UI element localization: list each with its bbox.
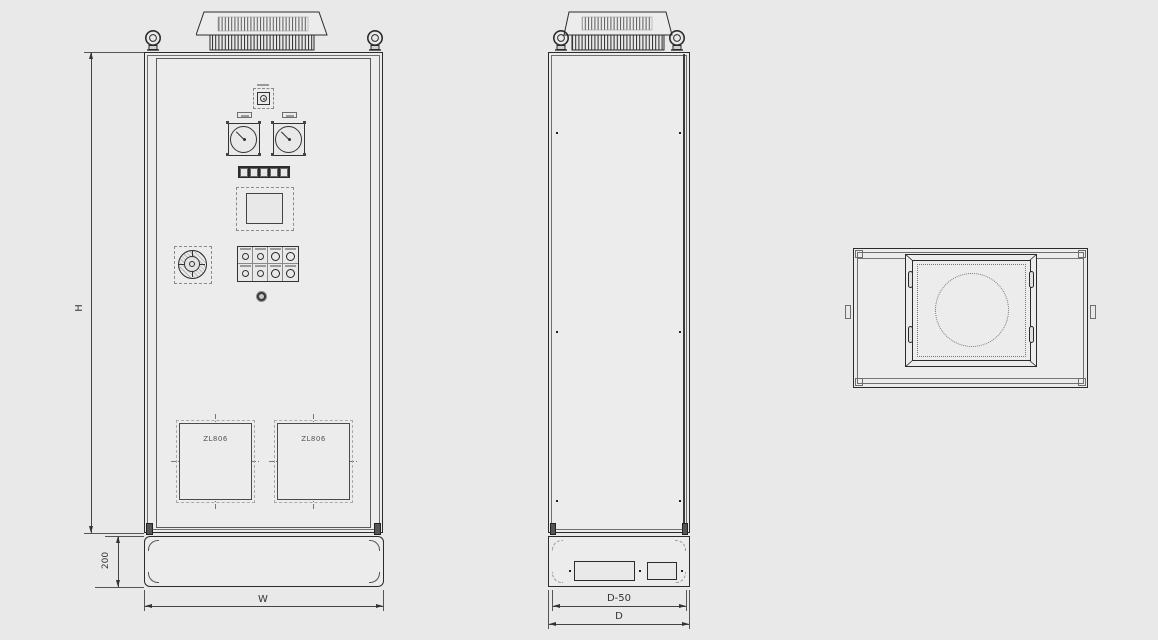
pushbutton-icon (242, 270, 249, 277)
pushbutton-cell (268, 247, 283, 264)
rivet-icon (681, 570, 683, 572)
plinth-corner-bracket (552, 572, 563, 583)
screw-icon (556, 500, 558, 502)
indicator-strip-cell (240, 168, 249, 177)
arrowhead-icon (549, 622, 556, 626)
corner-post (855, 378, 863, 386)
arrowhead-icon (553, 604, 560, 608)
nameplate-large (574, 561, 635, 581)
indicator-strip-cell (280, 168, 289, 177)
pushbutton-icon (271, 269, 280, 278)
meter-right-tag (282, 112, 297, 118)
display-screen (246, 193, 283, 224)
pushbutton-cell (283, 247, 298, 264)
arrowhead-icon (116, 536, 120, 543)
front-plinth (144, 536, 384, 587)
meter-right-tag-text (286, 115, 294, 117)
rivet-icon (639, 570, 641, 572)
dim-label-W: W (248, 595, 278, 605)
extension-line (689, 590, 690, 629)
hood-clip-slot (908, 326, 913, 343)
plinth-corner-bracket (552, 540, 563, 551)
arrowhead-icon (376, 604, 383, 608)
pushbutton-icon (286, 252, 295, 261)
arrowhead-icon (145, 604, 152, 608)
ammeter-pivot (288, 138, 291, 141)
hood-clip-slot (1029, 326, 1034, 343)
plinth-corner-bracket (369, 572, 380, 583)
pushbutton-icon (257, 253, 264, 260)
extension-line (686, 590, 687, 611)
leveling-foot (550, 523, 556, 535)
side-cabinet-inner-frame (551, 55, 687, 530)
side-vent-hood (556, 10, 678, 52)
hood-grille-band (210, 35, 314, 50)
pushbutton-cell (238, 264, 253, 281)
pushbutton-cell (238, 247, 253, 264)
pushbutton-cell (253, 247, 268, 264)
screw-icon (226, 121, 229, 124)
arrowhead-icon (89, 526, 93, 533)
pushbutton-cell (253, 264, 268, 281)
pushbutton-icon (257, 270, 264, 277)
louver-right-label: ZL806 (278, 436, 349, 443)
plinth-corner-bracket (369, 540, 380, 551)
indicator-strip-cell (250, 168, 259, 177)
screw-icon (226, 153, 229, 156)
voltmeter-pivot (243, 138, 246, 141)
dim-label-D50: D-50 (594, 594, 644, 604)
eyebolt-icon (142, 29, 164, 53)
round-handle (178, 250, 207, 279)
eyebolt-icon (364, 29, 386, 53)
arrowhead-icon (89, 52, 93, 59)
top-frame-profile-line (858, 378, 1083, 379)
corner-post (855, 250, 863, 258)
fan-circle-hidden-line (935, 273, 1009, 347)
screw-icon (556, 331, 558, 333)
screw-icon (679, 500, 681, 502)
pushbutton-cell (283, 264, 298, 281)
plinth-corner-bracket (675, 540, 686, 551)
plinth-corner-bracket (148, 540, 159, 551)
eyebolt-icon (550, 29, 572, 53)
screw-icon (271, 153, 274, 156)
arrowhead-icon (679, 604, 686, 608)
nameplate-small (647, 562, 677, 580)
leveling-foot (146, 523, 153, 535)
dimension-line-H (91, 53, 92, 533)
hood-clip-slot (908, 271, 913, 288)
screw-icon (679, 132, 681, 134)
screw-icon (303, 121, 306, 124)
hood-grille-band (572, 35, 664, 50)
hood-clip-slot (1029, 271, 1034, 288)
indicator-strip (238, 166, 290, 178)
extension-line (84, 52, 144, 53)
indicator-strip-cell (270, 168, 279, 177)
screw-icon (556, 132, 558, 134)
corner-post (1078, 378, 1086, 386)
rivet-icon (569, 570, 571, 572)
extension-line (105, 536, 144, 537)
dimension-line-W (145, 606, 383, 607)
meter-left-tag-text (241, 115, 249, 117)
pushbutton-cell (268, 264, 283, 281)
extension-line (383, 590, 384, 611)
dim-label-200: 200 (102, 552, 111, 569)
lamp-micro-label (257, 84, 269, 86)
leveling-foot (374, 523, 381, 535)
side-tab (845, 305, 851, 319)
corner-post (1078, 250, 1086, 258)
extension-line (95, 587, 144, 588)
pushbutton-icon (271, 252, 280, 261)
louver-panel-right: ZL806 (277, 423, 350, 500)
indicator-strip-cell (260, 168, 269, 177)
handle-center (189, 261, 195, 267)
meter-left-tag (237, 112, 252, 118)
screw-icon (679, 331, 681, 333)
screw-icon (303, 153, 306, 156)
dimension-line-D50 (553, 606, 686, 607)
screw-icon (258, 153, 261, 156)
technical-drawing-canvas: ZL806 ZL806 H 200 (0, 0, 1158, 640)
screw-icon (258, 121, 261, 124)
plinth-corner-bracket (148, 572, 159, 583)
screw-icon (271, 121, 274, 124)
leveling-foot (682, 523, 688, 535)
dim-label-H: H (75, 304, 85, 312)
door-lock-icon (257, 292, 266, 301)
side-tab (1090, 305, 1096, 319)
indicator-lamp-dot (263, 98, 265, 100)
side-door-edge (683, 54, 685, 531)
arrowhead-icon (116, 580, 120, 587)
arrowhead-icon (682, 622, 689, 626)
dim-label-D: D (604, 612, 634, 622)
dimension-line-D (549, 624, 689, 625)
pushbutton-icon (286, 269, 295, 278)
hood-grille-upper (582, 17, 652, 30)
hood-grille-upper (218, 17, 308, 31)
louver-left-label: ZL806 (180, 436, 251, 443)
eyebolt-icon (666, 29, 688, 53)
louver-panel-left: ZL806 (179, 423, 252, 500)
pushbutton-icon (242, 253, 249, 260)
extension-line (84, 533, 144, 534)
front-vent-hood (196, 10, 330, 52)
